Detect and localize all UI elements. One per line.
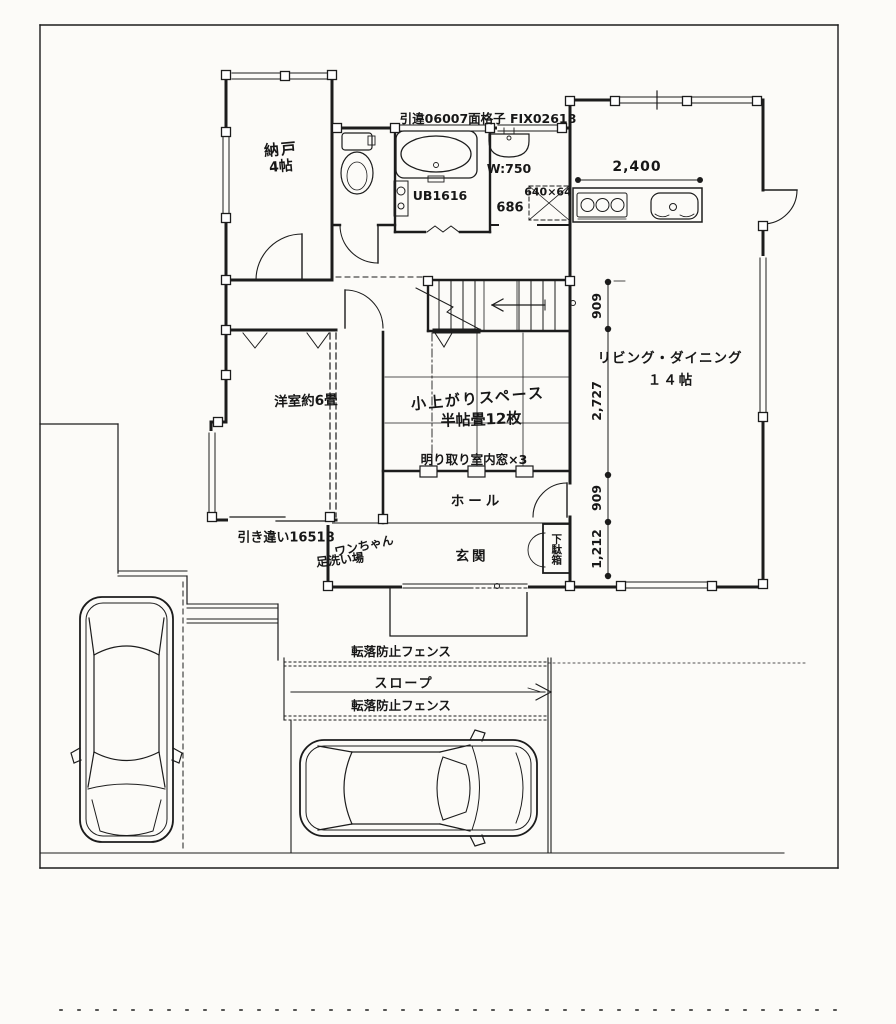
dimension-right-3: 909 [591, 485, 604, 511]
car-2-icon [300, 730, 537, 846]
annotation-sliding-window: 引き違い16518 [237, 532, 334, 545]
site-boundary [40, 25, 850, 1010]
annotation-fence-upper: 転落防止フェンス [351, 646, 451, 659]
annotation-interior-windows: 明り取り室内窓×3 [421, 454, 528, 467]
dimension-kitchen-width: 2,400 [612, 160, 661, 174]
room-label-hall: ホール [451, 495, 504, 509]
room-label-nando-name: 納戸 [263, 141, 298, 159]
dimension-right-4: 1,212 [591, 529, 604, 569]
annotation-fence-lower: 転落防止フェンス [351, 700, 451, 713]
approach-path [40, 424, 278, 850]
room-label-living-size: １４帖 [648, 374, 695, 388]
annotation-hatch: 640×64 [524, 187, 572, 198]
car-1-icon [71, 597, 182, 842]
window-vent-icon [307, 333, 329, 348]
room-label-western: 洋室約6畳 [274, 394, 338, 410]
floor-plan-page: 納戸 4帖 引違06007面格子 FIX02618 UB1616 W:750 2… [0, 0, 896, 1024]
dimension-right-2: 2,727 [591, 381, 604, 421]
kitchen-sink-icon [651, 193, 698, 219]
annotation-top-windows: 引違06007面格子 FIX02618 [400, 113, 577, 126]
floor-plan-drawing [0, 0, 896, 1024]
entrance-door [402, 581, 528, 592]
room-label-bath: UB1616 [413, 190, 467, 203]
slope-ramp [284, 658, 808, 852]
annotation-slope: スロープ [374, 678, 433, 691]
toilet-icon [341, 133, 375, 194]
room-label-entrance: 玄関 [456, 550, 489, 564]
fence-lower-line [284, 716, 548, 720]
room-label-wash: W:750 [487, 163, 532, 176]
room-label-tatami-line2: 半帖畳12枚 [440, 411, 521, 429]
window-vent-icon [243, 333, 267, 348]
doors [256, 190, 797, 567]
room-label-shoe-cabinet: 下駄箱 [551, 533, 562, 565]
staircase [416, 280, 576, 331]
bathtub-icon [396, 131, 477, 182]
dimension-right-1: 909 [591, 293, 604, 319]
room-label-nando-size: 4帖 [269, 159, 294, 175]
annotation-wash-width: 686 [496, 202, 523, 215]
kitchen-counter [573, 188, 702, 222]
fence-upper-line [284, 662, 548, 666]
room-label-living-name: リビング・ダイニング [598, 352, 743, 366]
window-vent-icon [435, 333, 452, 347]
entrance-porch [390, 588, 527, 636]
